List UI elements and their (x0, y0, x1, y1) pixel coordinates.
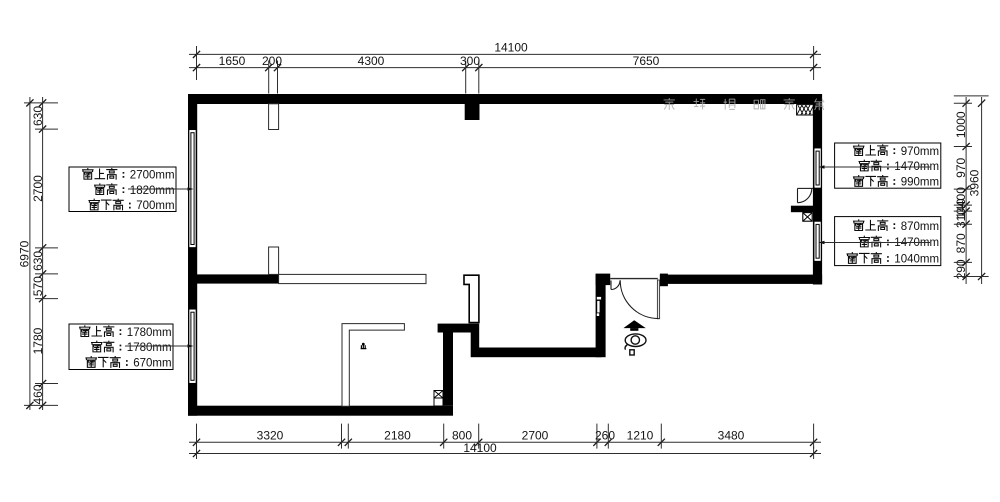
svg-text:14100: 14100 (463, 441, 497, 455)
svg-text:1650: 1650 (219, 54, 246, 68)
svg-text:260: 260 (595, 429, 615, 443)
svg-text:990mm: 990mm (901, 177, 939, 189)
svg-text:670mm: 670mm (133, 358, 171, 370)
svg-text:970mm: 970mm (901, 146, 939, 158)
svg-text:3960: 3960 (967, 169, 981, 196)
svg-text:1210: 1210 (627, 429, 654, 443)
svg-text:570: 570 (31, 276, 45, 296)
svg-text:630: 630 (31, 251, 45, 271)
svg-text:970: 970 (954, 157, 968, 177)
svg-text:3480: 3480 (718, 429, 745, 443)
svg-text:870: 870 (954, 233, 968, 253)
svg-text:1780mm: 1780mm (127, 327, 172, 339)
svg-text:7650: 7650 (633, 54, 660, 68)
svg-text:2700: 2700 (522, 429, 549, 443)
svg-text:1780mm: 1780mm (127, 342, 172, 354)
svg-text:1780: 1780 (31, 327, 45, 354)
svg-text:1000: 1000 (954, 111, 968, 138)
svg-text:2180: 2180 (384, 429, 411, 443)
svg-text:870mm: 870mm (901, 221, 939, 233)
svg-text:1040mm: 1040mm (894, 254, 939, 266)
svg-text:2700mm: 2700mm (130, 170, 175, 182)
svg-text:310: 310 (954, 208, 968, 228)
svg-text:1470mm: 1470mm (894, 237, 939, 249)
svg-text:200: 200 (262, 54, 282, 68)
svg-text:630: 630 (31, 106, 45, 126)
svg-text:6970: 6970 (18, 240, 32, 267)
svg-text:300: 300 (460, 54, 480, 68)
svg-text:1820mm: 1820mm (130, 185, 175, 197)
svg-text:4300: 4300 (358, 54, 385, 68)
svg-text:700mm: 700mm (136, 200, 174, 212)
svg-text:14100: 14100 (494, 41, 528, 55)
svg-text:2700: 2700 (31, 175, 45, 202)
svg-text:3320: 3320 (257, 429, 284, 443)
svg-text:460: 460 (31, 384, 45, 404)
